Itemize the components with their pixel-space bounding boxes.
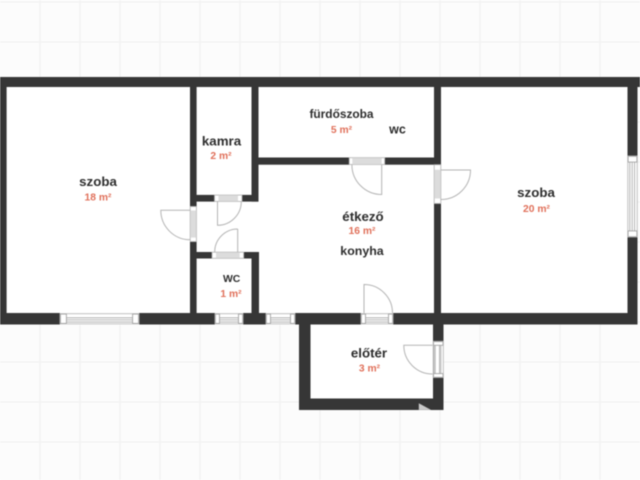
svg-text:konyha: konyha <box>340 244 383 258</box>
svg-text:fürdőszoba: fürdőszoba <box>309 107 373 121</box>
svg-text:wc: wc <box>388 123 406 137</box>
svg-text:WC: WC <box>223 274 241 285</box>
svg-text:előtér: előtér <box>351 346 387 361</box>
svg-text:16 m²: 16 m² <box>349 226 376 237</box>
svg-text:szoba: szoba <box>517 185 555 200</box>
svg-text:2 m²: 2 m² <box>210 151 232 162</box>
svg-text:20 m²: 20 m² <box>523 204 550 215</box>
svg-text:3 m²: 3 m² <box>359 364 381 375</box>
svg-text:étkező: étkező <box>342 209 383 224</box>
svg-text:1 m²: 1 m² <box>220 289 242 300</box>
svg-text:5 m²: 5 m² <box>331 125 353 136</box>
svg-text:szoba: szoba <box>79 174 117 189</box>
svg-text:18 m²: 18 m² <box>85 193 112 204</box>
svg-text:kamra: kamra <box>202 133 242 148</box>
